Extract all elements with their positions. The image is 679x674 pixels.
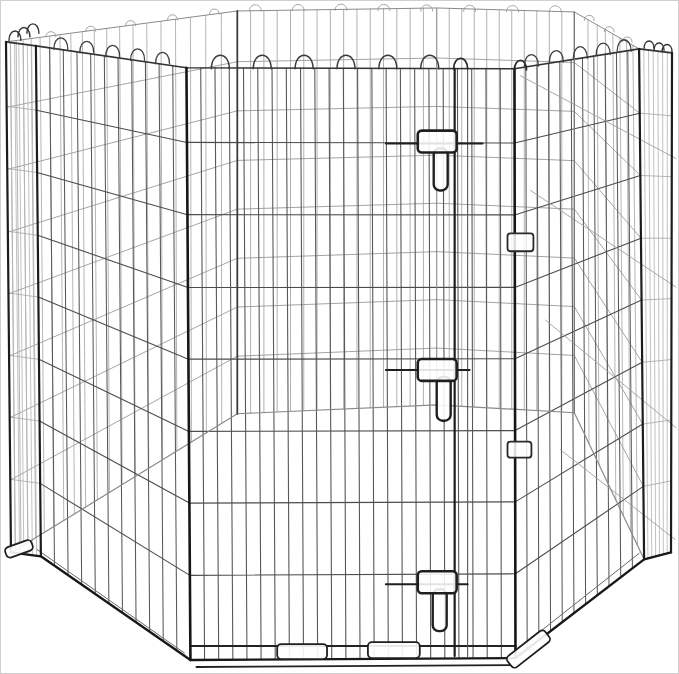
back-rim-rail	[6, 8, 639, 49]
panel-near-left	[37, 48, 190, 651]
door-stile-loop	[454, 58, 468, 68]
product-image-pet-pen	[0, 0, 679, 674]
door-latch-bottom-handle	[418, 571, 457, 593]
foot-tab-front-right	[368, 642, 420, 658]
foot-tab-right-panel	[505, 629, 551, 669]
pen-line-art	[1, 1, 678, 673]
door-latch-middle-handle	[418, 359, 457, 381]
post-corner-left-inner	[36, 46, 41, 556]
post-door-left	[186, 68, 190, 660]
post-door-right	[514, 69, 515, 658]
far-right-rim-loops	[584, 15, 632, 42]
front-ground-edge	[196, 665, 509, 667]
door-latch-bottom-pin	[433, 589, 447, 631]
foot-tabs	[4, 539, 552, 669]
hinge-clip-lower	[508, 442, 532, 458]
post-corner-left-outer	[6, 42, 11, 552]
door-latch-top-handle	[418, 131, 457, 153]
panel-near-right	[515, 51, 644, 649]
foot-tab-front-left	[277, 644, 327, 659]
door-latch-middle-pin	[437, 377, 451, 421]
panel-edge-right	[640, 49, 672, 558]
back-bottom-rail	[12, 405, 644, 560]
door-latch-top-pin	[434, 149, 448, 191]
post-corner-right-outer	[671, 53, 672, 553]
door-latch-middle	[386, 359, 470, 421]
hinge-clip-upper	[508, 233, 534, 251]
